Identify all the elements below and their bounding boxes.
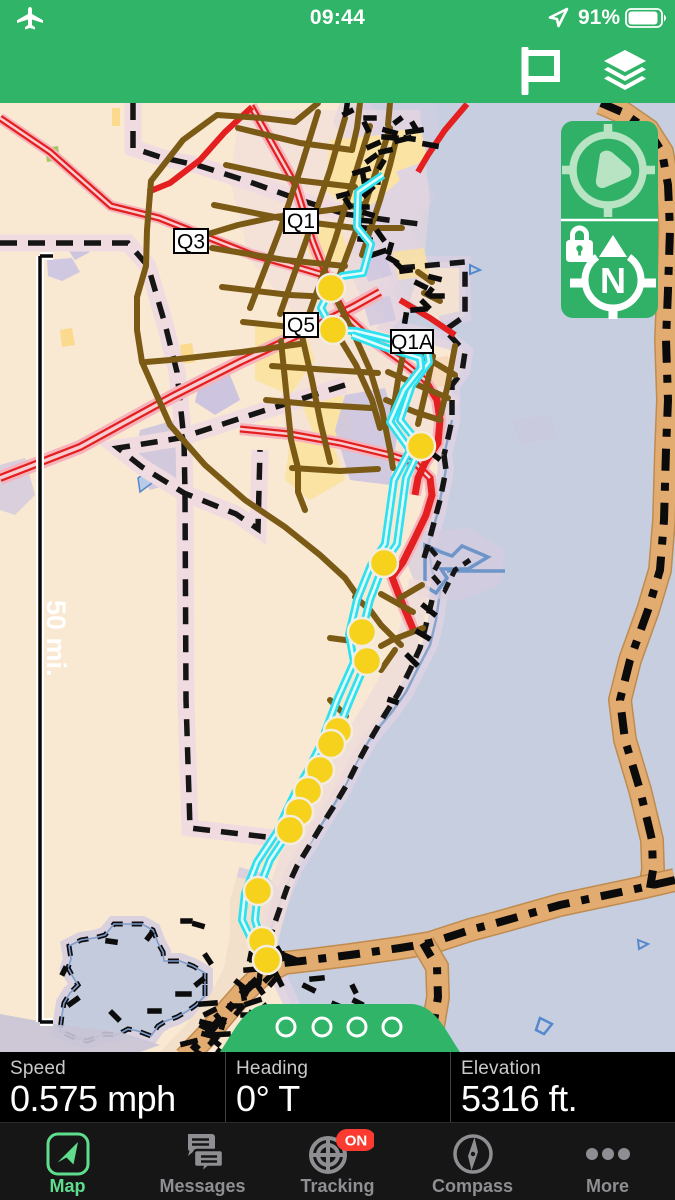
svg-text:Q1: Q1 [287, 210, 315, 233]
svg-text:50 mi.: 50 mi. [41, 600, 71, 677]
svg-text:Q1A: Q1A [391, 331, 433, 354]
svg-text:Q3: Q3 [177, 231, 205, 254]
svg-text:N: N [600, 260, 626, 301]
svg-text:Q5: Q5 [287, 314, 315, 337]
svg-text:ON: ON [344, 1133, 367, 1150]
